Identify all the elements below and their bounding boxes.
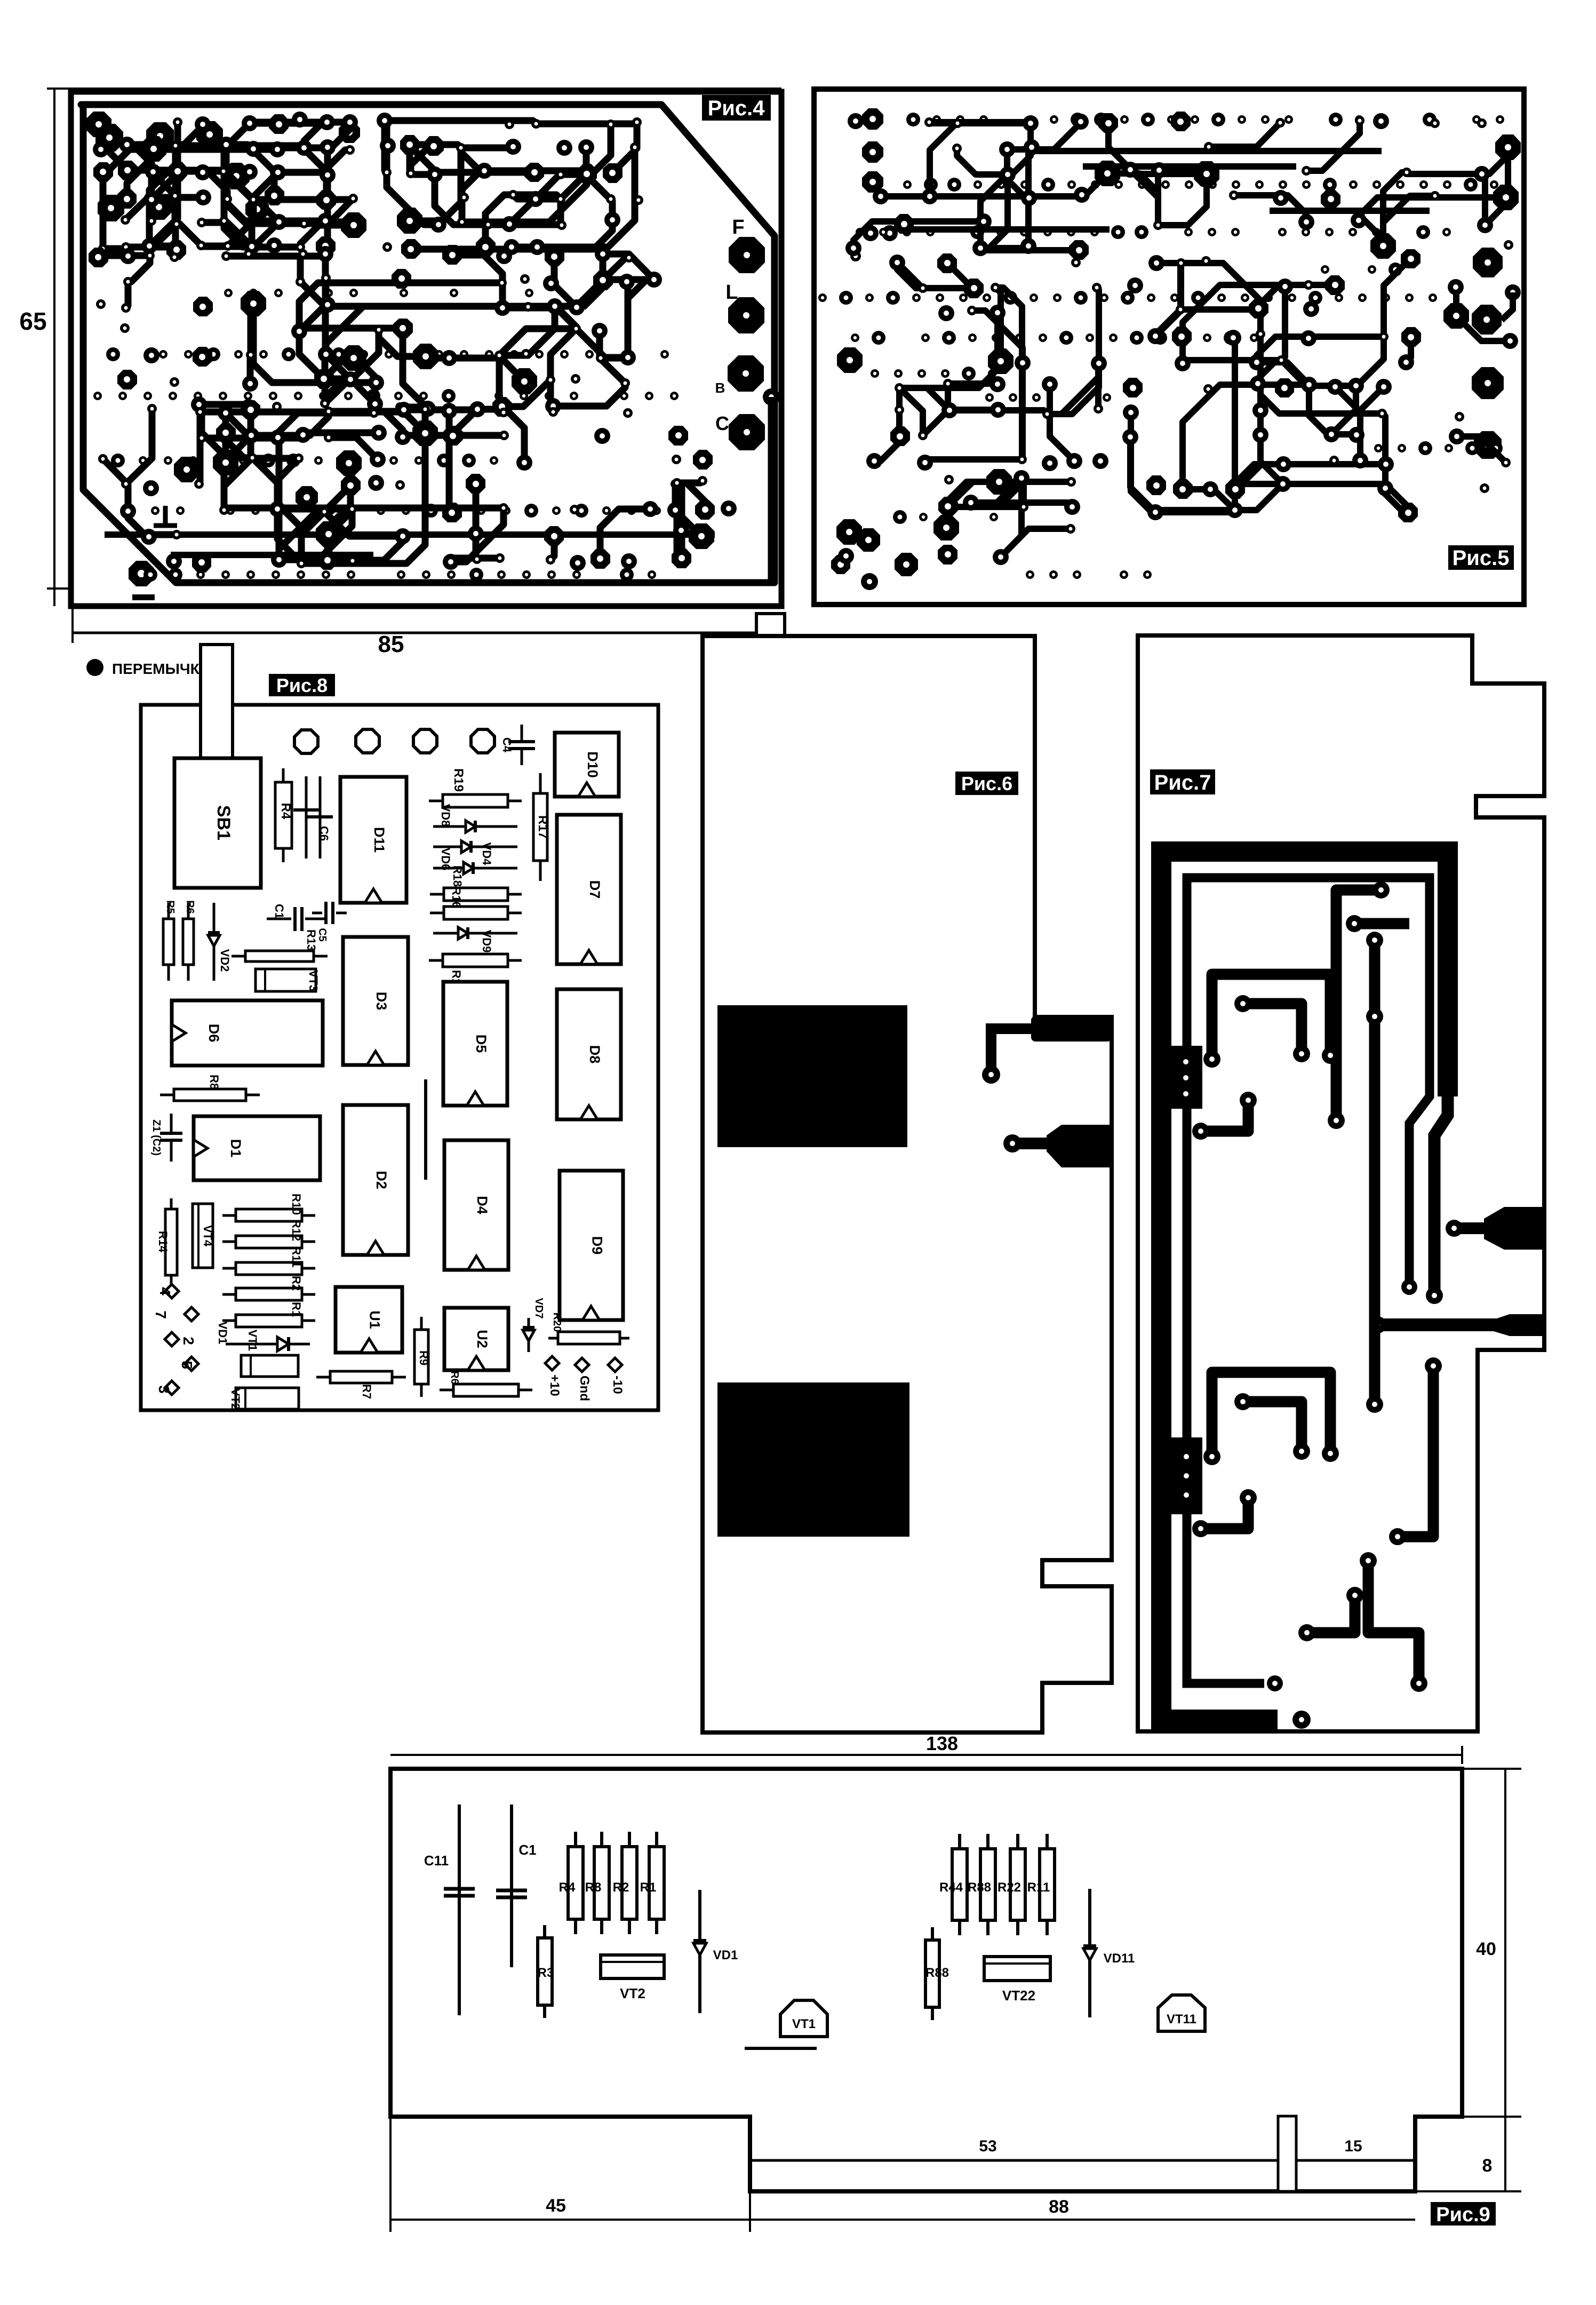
svg-text:R19: R19: [451, 768, 466, 792]
svg-text:R1: R1: [290, 1302, 303, 1317]
svg-text:Z1 (C2): Z1 (C2): [150, 1119, 162, 1156]
svg-text:53: 53: [979, 2137, 996, 2155]
svg-text:R13: R13: [305, 929, 318, 951]
svg-text:VT1: VT1: [792, 2017, 816, 2031]
svg-text:VT3: VT3: [307, 970, 320, 991]
svg-text:D9: D9: [589, 1236, 605, 1255]
svg-text:VD2: VD2: [218, 949, 232, 972]
svg-text:D3: D3: [373, 992, 389, 1011]
svg-text:R88: R88: [925, 1966, 949, 1980]
svg-text:U2: U2: [474, 1330, 490, 1348]
svg-text:R8: R8: [208, 1075, 221, 1090]
svg-text:Рис.4: Рис.4: [708, 97, 765, 120]
svg-text:R12: R12: [290, 1220, 303, 1241]
svg-text:D1: D1: [228, 1139, 244, 1158]
svg-text:VD6: VD6: [439, 848, 452, 871]
svg-text:8: 8: [1482, 2156, 1493, 2176]
svg-text:R88: R88: [968, 1880, 991, 1895]
svg-text:7: 7: [153, 1310, 169, 1319]
svg-text:138: 138: [926, 1732, 958, 1754]
svg-text:B: B: [715, 380, 725, 396]
svg-text:R2: R2: [613, 1880, 629, 1895]
svg-text:VT4: VT4: [201, 1225, 214, 1247]
svg-text:85: 85: [378, 631, 404, 657]
svg-text:VT11: VT11: [1167, 2012, 1196, 2026]
svg-text:D10: D10: [585, 751, 601, 778]
svg-text:3: 3: [156, 1385, 172, 1394]
svg-text:Рис.6: Рис.6: [961, 773, 1012, 794]
svg-text:D11: D11: [371, 827, 387, 853]
svg-text:VD11: VD11: [1104, 1951, 1135, 1966]
svg-text:VD8: VD8: [439, 804, 452, 827]
svg-text:C1: C1: [518, 1842, 536, 1858]
svg-text:R7: R7: [360, 1384, 373, 1399]
svg-text:R22: R22: [997, 1880, 1021, 1895]
svg-text:D7: D7: [587, 880, 603, 899]
svg-text:Рис.8: Рис.8: [276, 674, 328, 696]
svg-text:R18: R18: [451, 865, 464, 887]
svg-text:VT2: VT2: [620, 1985, 645, 2001]
svg-text:C: C: [715, 412, 729, 434]
svg-text:VD9: VD9: [480, 930, 493, 953]
svg-text:R1: R1: [640, 1880, 657, 1895]
svg-text:Рис.5: Рис.5: [1453, 546, 1510, 570]
svg-text:R14: R14: [156, 1231, 170, 1253]
svg-text:4: 4: [157, 1287, 173, 1295]
svg-text:R16: R16: [450, 887, 463, 908]
svg-text:C6: C6: [317, 826, 331, 841]
svg-text:R3: R3: [538, 1966, 554, 1980]
svg-text:F: F: [732, 216, 744, 239]
svg-text:88: 88: [1049, 2197, 1069, 2217]
svg-text:R17: R17: [536, 815, 550, 839]
svg-text:R6: R6: [449, 1371, 460, 1385]
svg-text:R44: R44: [939, 1880, 963, 1895]
svg-text:ПЕРЕМЫЧКА: ПЕРЕМЫЧКА: [112, 661, 210, 677]
svg-text:15: 15: [1344, 2137, 1362, 2155]
svg-text:R10: R10: [290, 1194, 303, 1215]
svg-text:VT22: VT22: [1002, 1988, 1035, 2004]
svg-text:+10: +10: [547, 1374, 562, 1396]
svg-text:65: 65: [19, 307, 46, 335]
svg-text:-10: -10: [610, 1376, 625, 1394]
svg-text:U1: U1: [367, 1310, 383, 1329]
svg-text:Рис.9: Рис.9: [1436, 2204, 1490, 2226]
svg-text:D6: D6: [206, 1024, 222, 1043]
svg-text:45: 45: [546, 2196, 566, 2216]
svg-text:D8: D8: [587, 1045, 603, 1064]
svg-text:VD7: VD7: [533, 1298, 545, 1319]
svg-text:R8: R8: [585, 1880, 602, 1895]
svg-text:VD4: VD4: [480, 842, 493, 866]
svg-text:R11: R11: [1027, 1880, 1050, 1895]
svg-text:R11: R11: [290, 1246, 303, 1267]
svg-text:R4: R4: [559, 1880, 576, 1895]
svg-text:D4: D4: [474, 1196, 490, 1214]
svg-text:R4: R4: [278, 803, 293, 820]
svg-text:40: 40: [1476, 1939, 1496, 1959]
svg-text:C4: C4: [500, 737, 514, 753]
svg-text:2: 2: [180, 1337, 197, 1345]
svg-text:D5: D5: [473, 1035, 489, 1053]
svg-text:R5: R5: [164, 900, 176, 914]
svg-text:L: L: [725, 281, 738, 304]
svg-text:5: 5: [179, 1361, 195, 1369]
svg-text:C1: C1: [273, 904, 286, 919]
svg-text:Рис.7: Рис.7: [1154, 771, 1211, 794]
svg-text:VD1: VD1: [216, 1322, 229, 1345]
svg-text:R9: R9: [417, 1350, 430, 1365]
svg-text:Gnd: Gnd: [577, 1376, 592, 1401]
svg-text:R6: R6: [184, 900, 196, 914]
svg-text:C11: C11: [424, 1853, 449, 1869]
svg-text:SB1: SB1: [213, 805, 234, 840]
svg-text:D2: D2: [373, 1171, 389, 1189]
svg-text:R2: R2: [290, 1276, 303, 1291]
svg-text:VT2: VT2: [229, 1388, 242, 1410]
svg-text:VT1: VT1: [246, 1330, 259, 1351]
svg-text:VD1: VD1: [713, 1948, 738, 1962]
